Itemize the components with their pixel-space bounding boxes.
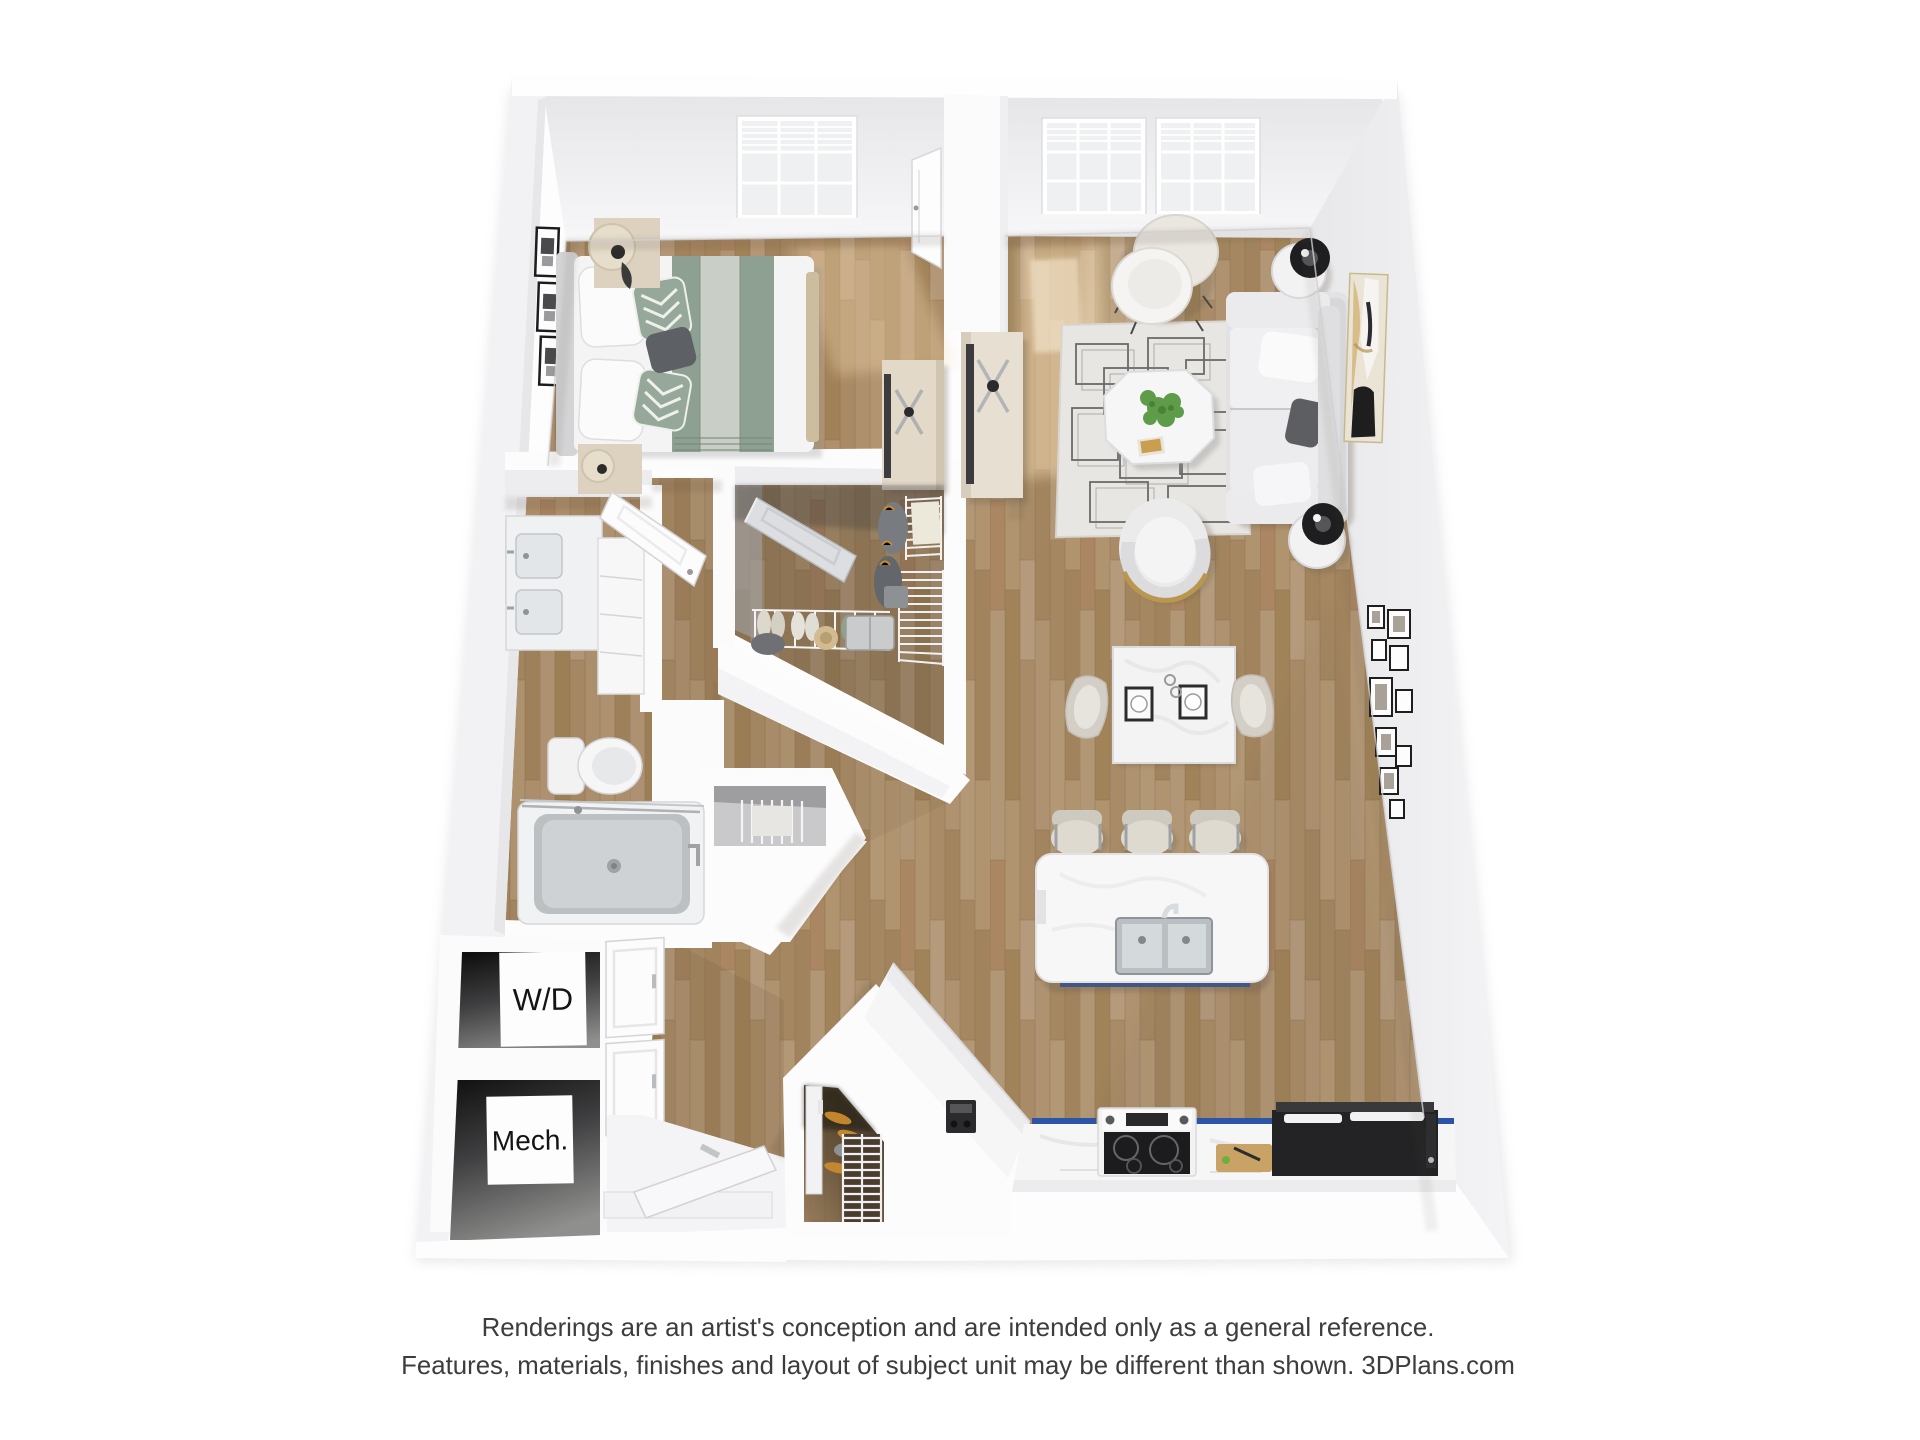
svg-text:Mech.: Mech. <box>492 1124 569 1156</box>
svg-text:Renderings are an artist's con: Renderings are an artist's conception an… <box>482 1314 1435 1342</box>
svg-text:Features, materials, finishes: Features, materials, finishes and layout… <box>401 1352 1515 1380</box>
svg-text:W/D: W/D <box>513 981 574 1017</box>
